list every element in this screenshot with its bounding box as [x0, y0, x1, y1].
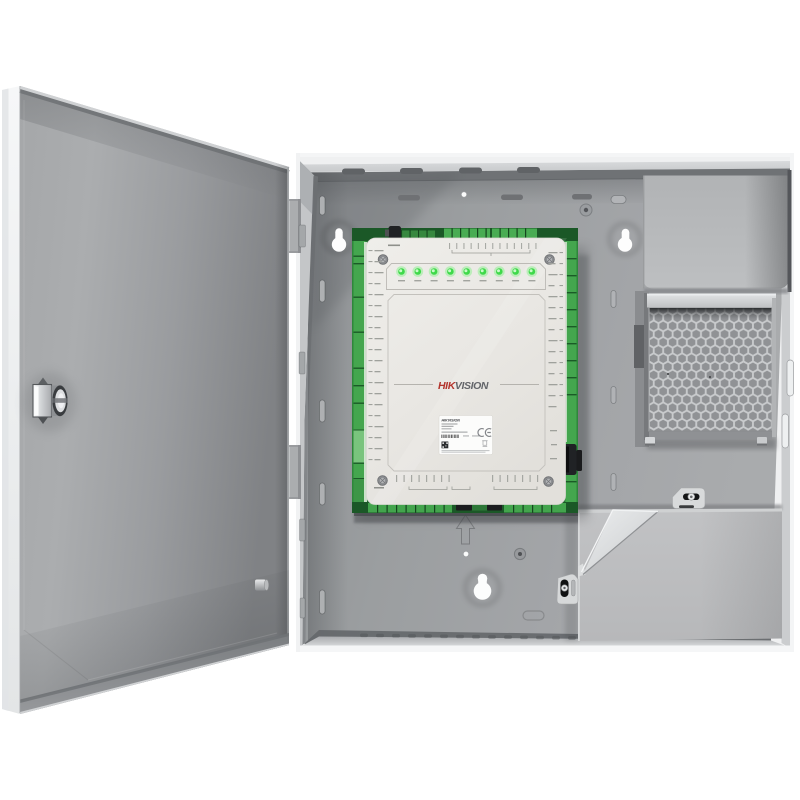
svg-text:HIKVISION: HIKVISION: [438, 380, 489, 392]
svg-text:HIKVISION: HIKVISION: [442, 419, 461, 423]
